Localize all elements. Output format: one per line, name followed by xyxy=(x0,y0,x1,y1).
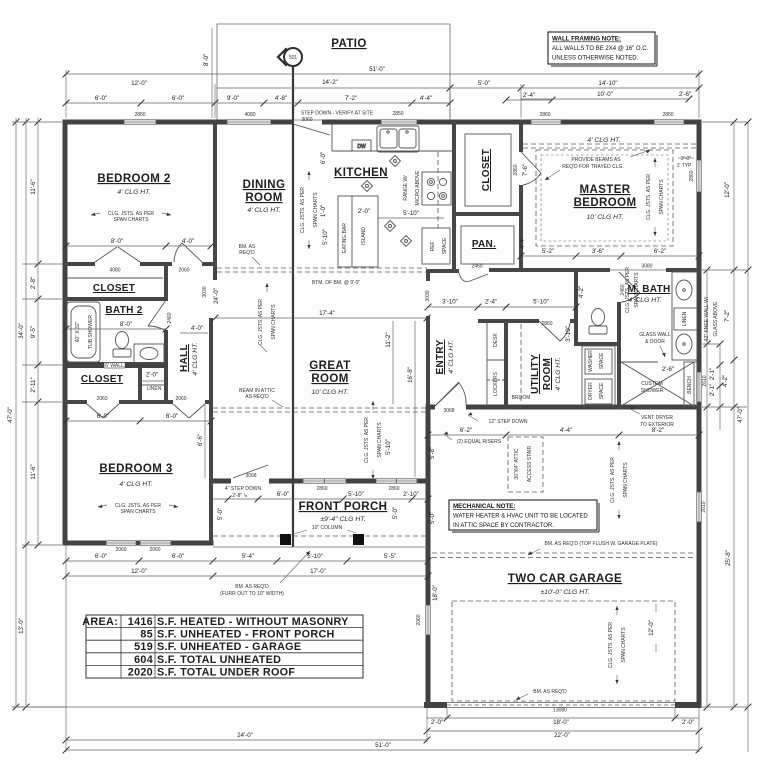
svg-text:2860: 2860 xyxy=(541,321,552,327)
svg-text:5'-5": 5'-5" xyxy=(384,553,396,560)
svg-text:5'-2": 5'-2" xyxy=(542,248,554,255)
svg-text:LOCKERS: LOCKERS xyxy=(493,371,499,396)
svg-text:3'-10": 3'-10" xyxy=(565,326,572,342)
svg-text:PATIO: PATIO xyxy=(331,38,366,50)
svg-text:ISLAND: ISLAND xyxy=(361,227,367,245)
svg-text:13'-0": 13'-0" xyxy=(18,618,25,634)
svg-text:ENTRY: ENTRY xyxy=(435,339,446,374)
svg-text:S.F. HEATED - WITHOUT MASONRY: S.F. HEATED - WITHOUT MASONRY xyxy=(157,616,349,628)
svg-text:REF.: REF. xyxy=(430,241,436,252)
svg-text:±9'-4" CLG HT.: ±9'-4" CLG HT. xyxy=(320,516,365,523)
svg-text:2860: 2860 xyxy=(134,112,145,118)
svg-text:11'-2": 11'-2" xyxy=(385,332,392,347)
svg-text:2'-1": 2'-1" xyxy=(709,368,716,380)
svg-text:AREA:: AREA: xyxy=(82,616,118,628)
svg-text:1'-0": 1'-0" xyxy=(320,205,327,217)
svg-text:CLG. JSTS. AS PER: CLG. JSTS. AS PER xyxy=(258,299,264,346)
svg-text:7'-2": 7'-2" xyxy=(345,95,357,102)
svg-text:5'-0": 5'-0" xyxy=(478,80,490,87)
svg-text:10'-0": 10'-0" xyxy=(597,91,613,98)
svg-text:3068: 3068 xyxy=(443,408,454,414)
svg-text:4'-0": 4'-0" xyxy=(191,325,203,332)
svg-text:CLG. JSTS. AS PER: CLG. JSTS. AS PER xyxy=(646,174,652,221)
svg-text:2'-4": 2'-4" xyxy=(485,299,497,306)
svg-text:STEP DOWN - VERIFY AT SITE: STEP DOWN - VERIFY AT SITE xyxy=(301,111,374,117)
svg-text:MICRO ABOVE: MICRO ABOVE xyxy=(415,170,421,206)
svg-text:4'-8": 4'-8" xyxy=(275,95,287,102)
svg-text:42" KNEE WALL W/: 42" KNEE WALL W/ xyxy=(704,296,710,341)
svg-text:BEDROOM: BEDROOM xyxy=(574,197,637,209)
svg-text:SPAN CHARTS: SPAN CHARTS xyxy=(623,462,629,498)
svg-text:BM. AS REQ'D: BM. AS REQ'D xyxy=(235,584,269,590)
svg-text:12" STEP DOWN: 12" STEP DOWN xyxy=(489,419,528,425)
svg-text:7'-6": 7'-6" xyxy=(522,164,529,176)
svg-text:SPAN CHARTS: SPAN CHARTS xyxy=(377,422,383,458)
svg-text:DESK: DESK xyxy=(493,333,499,347)
svg-text:2'-4": 2'-4" xyxy=(523,92,535,99)
svg-text:4'-4": 4'-4" xyxy=(519,237,526,249)
svg-text:4'-0": 4'-0" xyxy=(182,238,194,245)
svg-text:2'-8": 2'-8" xyxy=(30,277,37,289)
svg-text:ACCESS STAIR: ACCESS STAIR xyxy=(527,445,533,482)
svg-text:2860: 2860 xyxy=(316,486,327,492)
svg-text:GREAT: GREAT xyxy=(309,360,350,372)
svg-text:5'-0": 5'-0" xyxy=(217,508,224,520)
svg-text:8'-2": 8'-2" xyxy=(652,427,664,434)
svg-text:UTILITY: UTILITY xyxy=(530,354,541,394)
svg-text:SPACE: SPACE xyxy=(442,237,448,254)
svg-text:5'-8": 5'-8" xyxy=(429,447,436,459)
svg-text:SPAN CHARTS: SPAN CHARTS xyxy=(634,272,640,308)
svg-text:BTM. OF BM. @ 9'-0": BTM. OF BM. @ 9'-0" xyxy=(312,280,361,286)
svg-text:SPAN CHARTS: SPAN CHARTS xyxy=(313,192,319,228)
svg-text:2460: 2460 xyxy=(167,312,173,323)
svg-text:6'-0": 6'-0" xyxy=(277,491,289,498)
svg-text:6'-0": 6'-0" xyxy=(97,413,109,420)
svg-text:SPACE: SPACE xyxy=(599,382,605,399)
svg-text:6'-2": 6'-2" xyxy=(654,248,666,255)
svg-text:6'-6": 6'-6" xyxy=(197,434,204,446)
svg-text:2'-10": 2'-10" xyxy=(403,491,419,498)
svg-text:6'-0": 6'-0" xyxy=(95,553,107,560)
svg-text:5'-0": 5'-0" xyxy=(429,512,436,524)
svg-text:6'-0": 6'-0" xyxy=(166,413,178,420)
svg-text:6'-0": 6'-0" xyxy=(172,95,184,102)
svg-text:8'-0": 8'-0" xyxy=(203,54,210,66)
svg-text:12'-0": 12'-0" xyxy=(648,620,655,636)
svg-text:DRYER: DRYER xyxy=(588,382,594,400)
svg-text:SPAN CHARTS: SPAN CHARTS xyxy=(659,179,665,215)
svg-text:7'-2": 7'-2" xyxy=(724,310,731,322)
svg-text:12'-0": 12'-0" xyxy=(724,182,731,198)
svg-text:LINEN: LINEN xyxy=(682,311,688,326)
svg-text:(FURR OUT TO 10" WIDTH): (FURR OUT TO 10" WIDTH) xyxy=(220,591,284,597)
svg-text:4" STEP DOWN: 4" STEP DOWN xyxy=(225,486,262,492)
svg-text:4'-2": 4'-2" xyxy=(578,286,585,298)
svg-text:10' CLG HT.: 10' CLG HT. xyxy=(312,389,349,396)
svg-text:SPAN CHARTS: SPAN CHARTS xyxy=(271,304,277,340)
svg-text:14'-2": 14'-2" xyxy=(322,79,338,86)
svg-text:TUB SHOWER: TUB SHOWER xyxy=(88,315,94,349)
svg-text:2'-0": 2'-0" xyxy=(681,156,691,162)
svg-text:BATH 2: BATH 2 xyxy=(105,305,142,316)
svg-text:4' CLG HT.: 4' CLG HT. xyxy=(587,137,620,144)
svg-text:TWO CAR GARAGE: TWO CAR GARAGE xyxy=(508,573,622,585)
svg-text:2860: 2860 xyxy=(513,164,519,175)
svg-text:CLG. JSTS. AS PER: CLG. JSTS. AS PER xyxy=(364,417,370,464)
svg-text:GLASS WALL: GLASS WALL xyxy=(639,332,671,338)
svg-text:BM. AS REQ'D (TOP FLUSH W. GAR: BM. AS REQ'D (TOP FLUSH W. GARAGE PLATE) xyxy=(545,541,658,547)
svg-text:8'-0": 8'-0" xyxy=(111,238,123,245)
svg-text:5'-10": 5'-10" xyxy=(403,210,419,217)
svg-text:VENT DRYER: VENT DRYER xyxy=(641,415,673,421)
svg-text:4' CLG HT.: 4' CLG HT. xyxy=(247,207,280,214)
svg-text:3030: 3030 xyxy=(202,286,208,297)
svg-text:3030: 3030 xyxy=(425,290,431,301)
svg-text:3'-10": 3'-10" xyxy=(442,299,458,306)
svg-text:16'-8": 16'-8" xyxy=(407,367,414,383)
svg-text:2060: 2060 xyxy=(115,547,126,553)
svg-text:CLG. JSTS. AS PER: CLG. JSTS. AS PER xyxy=(608,622,614,669)
svg-text:DW: DW xyxy=(357,144,366,150)
svg-text:10" COLUMN: 10" COLUMN xyxy=(312,525,343,531)
svg-text:2'-11": 2'-11" xyxy=(30,377,37,392)
svg-text:5'-10": 5'-10" xyxy=(322,229,329,245)
svg-text:8'-0": 8'-0" xyxy=(120,321,132,328)
svg-text:4' CLG HT.: 4' CLG HT. xyxy=(448,340,455,373)
svg-text:(2) EQUAL RISERS: (2) EQUAL RISERS xyxy=(457,439,502,445)
svg-text:PROVIDE BEAMS AS: PROVIDE BEAMS AS xyxy=(571,157,621,163)
svg-text:2860: 2860 xyxy=(689,170,695,181)
svg-text:& DOOR: & DOOR xyxy=(645,339,665,345)
svg-text:2060: 2060 xyxy=(96,396,107,402)
svg-text:6' WALL: 6' WALL xyxy=(105,363,124,369)
svg-text:5'-10": 5'-10" xyxy=(385,439,392,455)
svg-text:17'-4": 17'-4" xyxy=(319,310,335,317)
svg-text:GLASS ABOVE: GLASS ABOVE xyxy=(713,301,719,337)
svg-text:DINING: DINING xyxy=(243,179,286,191)
svg-text:18'-0": 18'-0" xyxy=(432,585,439,601)
svg-text:2860: 2860 xyxy=(388,486,399,492)
svg-text:11'-6": 11'-6" xyxy=(30,179,37,194)
svg-text:LINEN: LINEN xyxy=(147,386,162,392)
svg-text:SPAN CHARTS: SPAN CHARTS xyxy=(621,627,627,663)
svg-text:ROOM: ROOM xyxy=(311,373,348,385)
svg-text:2'-1": 2'-1" xyxy=(709,384,716,396)
svg-text:604: 604 xyxy=(134,654,153,666)
svg-text:SHOWER: SHOWER xyxy=(641,388,664,394)
svg-text:2020: 2020 xyxy=(128,666,153,678)
svg-text:CLOSET: CLOSET xyxy=(93,283,135,294)
svg-text:6'-0": 6'-0" xyxy=(320,152,327,164)
svg-text:BEDROOM 2: BEDROOM 2 xyxy=(97,173,170,185)
svg-text:WALL FRAMING NOTE:: WALL FRAMING NOTE: xyxy=(552,36,621,43)
svg-text:6'-0": 6'-0" xyxy=(172,553,184,560)
svg-text:S.F. TOTAL UNDER ROOF: S.F. TOTAL UNDER ROOF xyxy=(157,666,295,678)
svg-text:MASTER: MASTER xyxy=(580,184,631,196)
svg-text:6'-0": 6'-0" xyxy=(95,95,107,102)
svg-text:3'-6": 3'-6" xyxy=(592,248,604,255)
svg-text:2060: 2060 xyxy=(178,268,189,274)
svg-text:4' CLG HT.: 4' CLG HT. xyxy=(555,357,562,390)
svg-text:1' TYP: 1' TYP xyxy=(677,163,692,169)
svg-text:SPAN CHARTS: SPAN CHARTS xyxy=(113,217,149,223)
svg-text:ROOM: ROOM xyxy=(245,192,282,204)
svg-text:2'-8" ↳: 2'-8" ↳ xyxy=(232,493,248,499)
svg-text:34'-0": 34'-0" xyxy=(18,323,25,339)
svg-text:CLG. JSTS. AS PER: CLG. JSTS. AS PER xyxy=(610,457,616,504)
svg-text:501: 501 xyxy=(289,55,298,61)
svg-text:WATER HEATER & HVAC UNIT TO BE: WATER HEATER & HVAC UNIT TO BE LOCATED xyxy=(453,514,588,520)
svg-text:3068: 3068 xyxy=(245,473,256,479)
svg-text:60" X 32": 60" X 32" xyxy=(75,321,81,342)
svg-text:3080: 3080 xyxy=(641,264,652,270)
svg-text:9'-5": 9'-5" xyxy=(30,326,37,338)
svg-text:2'-0": 2'-0" xyxy=(682,719,694,726)
svg-text:BEDROOM 3: BEDROOM 3 xyxy=(99,463,172,475)
svg-text:10' CLG HT.: 10' CLG HT. xyxy=(587,214,624,221)
svg-text:HALL: HALL xyxy=(179,344,190,372)
svg-text:WASHER: WASHER xyxy=(588,350,594,372)
svg-text:S.F. UNHEATED - FRONT PORCH: S.F. UNHEATED - FRONT PORCH xyxy=(157,629,335,641)
svg-text:±10'-0" CLG HT.: ±10'-0" CLG HT. xyxy=(540,589,589,596)
svg-text:4'-4": 4'-4" xyxy=(420,95,432,102)
svg-text:4' CLG HT.: 4' CLG HT. xyxy=(192,342,199,375)
svg-text:3060: 3060 xyxy=(301,117,312,123)
svg-text:2460: 2460 xyxy=(471,264,482,270)
svg-text:51'-0": 51'-0" xyxy=(369,66,385,73)
svg-text:2'-0": 2'-0" xyxy=(146,372,158,379)
svg-text:519: 519 xyxy=(134,641,153,653)
svg-text:2060: 2060 xyxy=(175,396,186,402)
svg-text:BENCH: BENCH xyxy=(687,376,693,394)
svg-text:PAN.: PAN. xyxy=(472,239,496,250)
svg-text:2460: 2460 xyxy=(620,284,626,295)
svg-text:4' CLG HT.: 4' CLG HT. xyxy=(119,481,152,488)
svg-text:CUSTOM: CUSTOM xyxy=(641,381,663,387)
svg-text:5'-10": 5'-10" xyxy=(348,491,364,498)
svg-text:4' CLG HT.: 4' CLG HT. xyxy=(117,189,150,196)
svg-text:4080: 4080 xyxy=(109,268,120,274)
svg-text:2'-6": 2'-6" xyxy=(679,91,691,98)
svg-text:85: 85 xyxy=(140,629,153,641)
svg-text:2610: 2610 xyxy=(701,501,707,512)
svg-text:22'-0": 22'-0" xyxy=(554,732,570,739)
svg-text:S.F. TOTAL UNHEATED: S.F. TOTAL UNHEATED xyxy=(157,654,281,666)
svg-text:4'-4": 4'-4" xyxy=(560,427,572,434)
svg-text:MECHANICAL NOTE:: MECHANICAL NOTE: xyxy=(453,503,515,510)
svg-text:ALL WALLS TO BE 2X4 @ 16" O.C.: ALL WALLS TO BE 2X4 @ 16" O.C. xyxy=(552,46,649,52)
svg-text:S.F. UNHEATED - GARAGE: S.F. UNHEATED - GARAGE xyxy=(157,641,301,653)
svg-text:SPAN CHARTS: SPAN CHARTS xyxy=(120,509,156,515)
svg-text:4080: 4080 xyxy=(244,112,255,118)
svg-text:SPACE: SPACE xyxy=(599,352,605,369)
svg-text:24'-0": 24'-0" xyxy=(237,732,253,739)
svg-text:5'-10": 5'-10" xyxy=(533,299,549,306)
svg-text:UNLESS OTHERWISE NOTED.: UNLESS OTHERWISE NOTED. xyxy=(552,56,639,62)
svg-text:2860: 2860 xyxy=(539,112,550,118)
svg-text:BM. AS REQ'D: BM. AS REQ'D xyxy=(533,689,567,695)
svg-text:47'-0": 47'-0" xyxy=(7,407,14,423)
svg-text:RANGE W/: RANGE W/ xyxy=(403,175,409,201)
svg-text:12'-0": 12'-0" xyxy=(131,568,147,575)
svg-text:1416: 1416 xyxy=(128,616,153,628)
svg-text:AS REQ'D: AS REQ'D xyxy=(245,394,269,400)
svg-text:IN ATTIC SPACE BY CONTRACTOR.: IN ATTIC SPACE BY CONTRACTOR. xyxy=(453,523,554,529)
svg-text:2060: 2060 xyxy=(149,547,160,553)
svg-text:24'-0": 24'-0" xyxy=(213,288,220,304)
svg-text:CLOSET: CLOSET xyxy=(81,374,123,385)
svg-text:2060: 2060 xyxy=(416,614,422,625)
svg-text:51'-0": 51'-0" xyxy=(375,742,391,749)
svg-text:EATING BAR: EATING BAR xyxy=(342,223,348,253)
svg-text:CLOSET: CLOSET xyxy=(481,149,492,191)
svg-text:ROOM: ROOM xyxy=(542,358,553,390)
svg-text:2'-0": 2'-0" xyxy=(358,208,370,215)
svg-text:9'-0": 9'-0" xyxy=(227,95,239,102)
svg-text:2860: 2860 xyxy=(662,112,673,118)
svg-text:17'-0": 17'-0" xyxy=(310,568,326,575)
svg-text:FRONT PORCH: FRONT PORCH xyxy=(299,501,388,513)
svg-text:30"/64" ATTIC: 30"/64" ATTIC xyxy=(514,448,520,480)
svg-text:REQ'D FOR TRAYED CLG.: REQ'D FOR TRAYED CLG. xyxy=(562,164,624,170)
svg-text:18'-0": 18'-0" xyxy=(553,719,569,726)
svg-text:CLG. JSTS. AS PER: CLG. JSTS. AS PER xyxy=(300,187,306,234)
svg-text:2'-6": 2'-6" xyxy=(662,366,674,373)
svg-text:4'-2": 4'-2" xyxy=(722,375,729,387)
svg-text:6'-2": 6'-2" xyxy=(460,427,472,434)
svg-text:5'-10": 5'-10" xyxy=(307,553,323,560)
svg-text:2'-0": 2'-0" xyxy=(431,719,443,726)
svg-text:12'-0": 12'-0" xyxy=(131,80,147,87)
svg-text:13080: 13080 xyxy=(553,708,567,714)
svg-text:KITCHEN: KITCHEN xyxy=(334,167,388,179)
svg-text:14'-10": 14'-10" xyxy=(598,80,617,87)
svg-text:REQ'D: REQ'D xyxy=(239,250,255,256)
svg-text:11'-6": 11'-6" xyxy=(30,464,37,479)
svg-text:25'-8": 25'-8" xyxy=(725,550,732,566)
svg-text:47'-0": 47'-0" xyxy=(737,407,744,423)
svg-text:5'-4": 5'-4" xyxy=(242,553,254,560)
svg-text:BROOM: BROOM xyxy=(512,395,531,401)
svg-text:2850: 2850 xyxy=(392,111,403,117)
svg-text:5'-0": 5'-0" xyxy=(392,507,399,519)
